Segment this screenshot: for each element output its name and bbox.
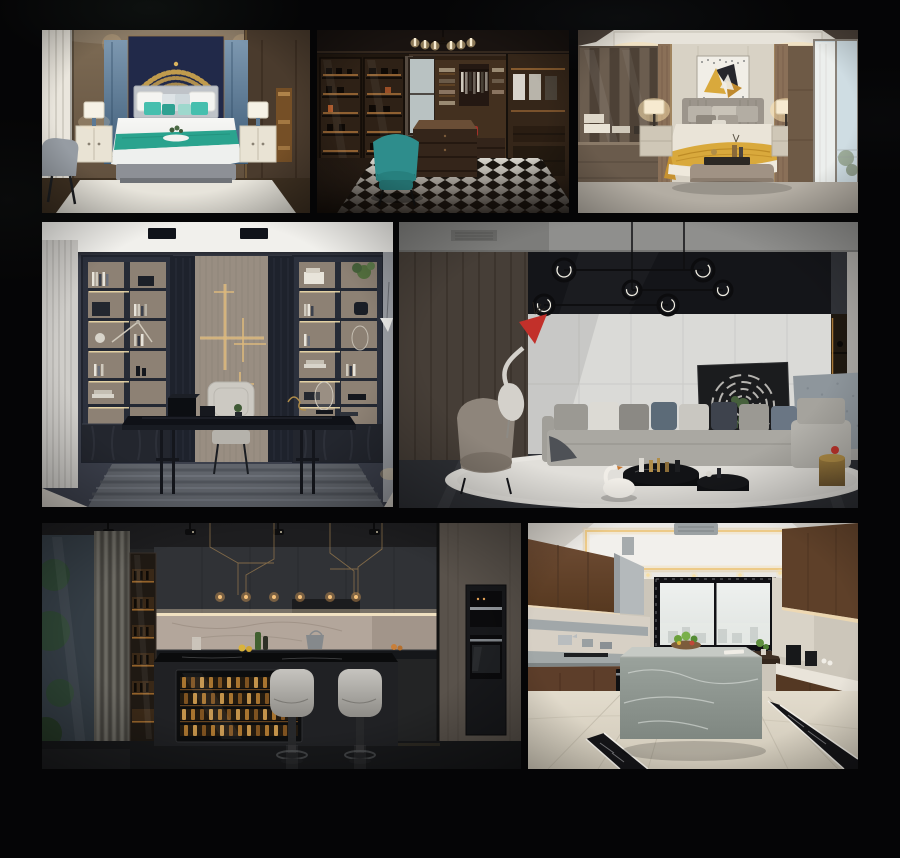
- kitchen-bar-scene: [42, 523, 521, 769]
- living-room-scene: [399, 222, 858, 508]
- bedroom-navy-scene: [42, 30, 310, 213]
- study-scene: [42, 222, 393, 507]
- bedroom-gold-scene: [578, 30, 858, 213]
- photo-study[interactable]: [42, 222, 393, 507]
- photo-walk-in-closet[interactable]: [317, 30, 569, 213]
- photo-kitchen-island[interactable]: [528, 523, 858, 769]
- photo-kitchen-bar[interactable]: [42, 523, 521, 769]
- photo-collage: [0, 0, 900, 858]
- kitchen-island-scene: [528, 523, 858, 769]
- photo-living-room[interactable]: [399, 222, 858, 508]
- closet-scene: [317, 30, 569, 213]
- photo-bedroom-gold[interactable]: [578, 30, 858, 213]
- photo-bedroom-navy[interactable]: [42, 30, 310, 213]
